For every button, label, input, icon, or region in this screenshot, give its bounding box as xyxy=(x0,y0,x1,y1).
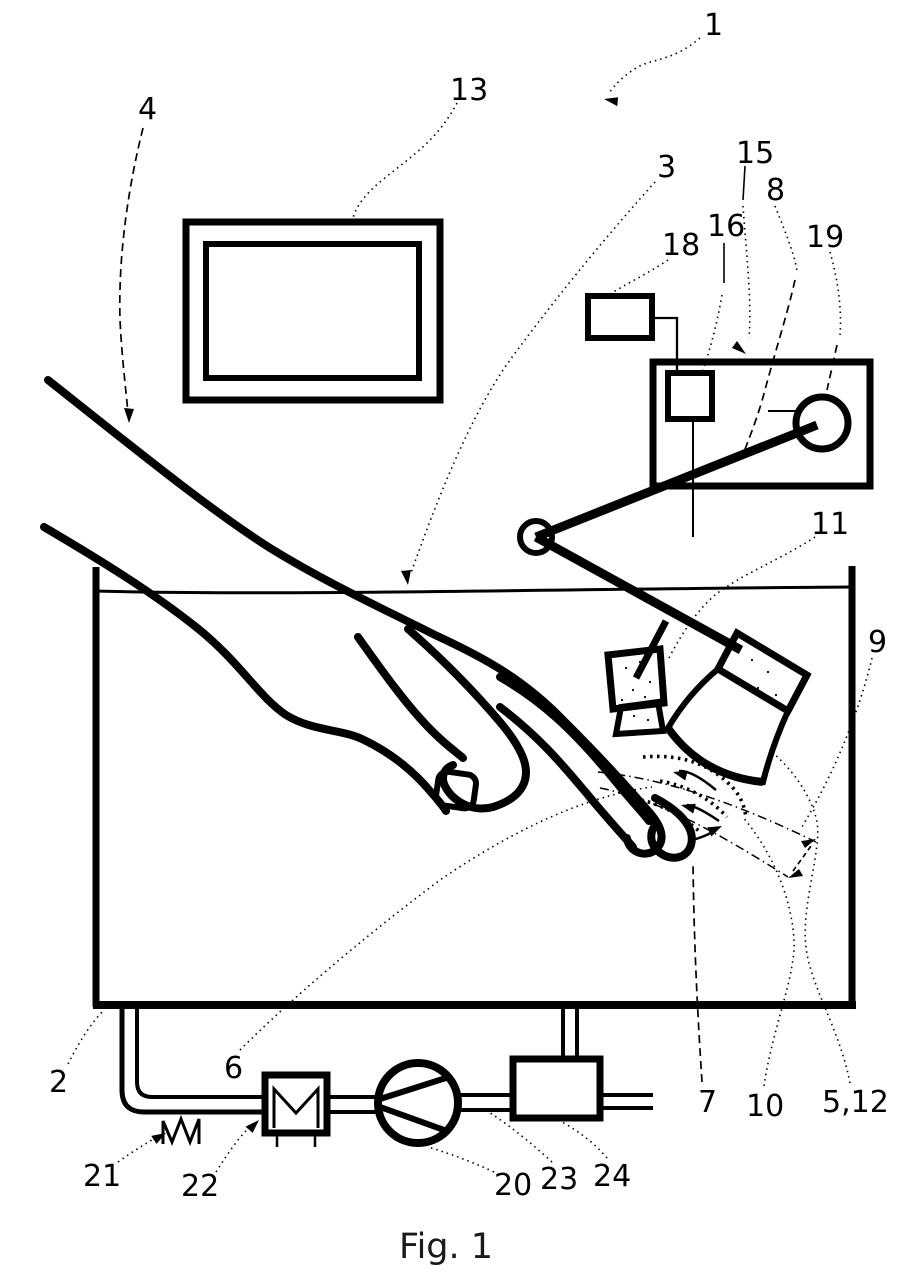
ref-label-21: 21 xyxy=(83,1159,121,1194)
ref-label-1: 1 xyxy=(704,8,723,43)
ref-label-9: 9 xyxy=(868,625,887,660)
ref-label-23: 23 xyxy=(540,1162,578,1197)
ref-label-13: 13 xyxy=(450,73,488,108)
figure-caption: Fig. 1 xyxy=(399,1227,493,1267)
ref-label-15: 15 xyxy=(736,136,774,171)
ref-label-8: 8 xyxy=(766,173,785,208)
filter-unit xyxy=(513,1059,600,1118)
ref-label-6: 6 xyxy=(224,1051,243,1086)
index-gap xyxy=(358,637,463,758)
ref-label-24: 24 xyxy=(593,1159,631,1194)
ref-label-16: 16 xyxy=(707,209,745,244)
ref-label-20: 20 xyxy=(494,1168,532,1203)
heat-exchanger xyxy=(265,1075,327,1147)
water-line xyxy=(95,587,849,593)
lever-rod xyxy=(520,425,817,678)
figure-canvas: 1 4 13 3 15 8 16 18 19 11 9 2 6 21 22 20… xyxy=(0,0,921,1276)
distance-arrow xyxy=(788,839,816,878)
ref-label-10: 10 xyxy=(746,1089,784,1124)
crank-wheel xyxy=(796,397,848,449)
ref-label-19: 19 xyxy=(806,220,844,255)
stipple-dots xyxy=(621,661,651,721)
ref-label-18: 18 xyxy=(662,228,700,263)
monitor-display xyxy=(186,222,440,400)
pump xyxy=(378,1063,458,1143)
ref-label-3: 3 xyxy=(657,150,676,185)
arm-top-contour xyxy=(48,380,650,813)
ref-label-2: 2 xyxy=(49,1065,68,1100)
ref-label-22: 22 xyxy=(181,1169,219,1204)
hand-and-arm xyxy=(44,380,692,858)
tool-workpiece xyxy=(668,633,807,782)
ref-label-7: 7 xyxy=(698,1085,717,1120)
ref-label-4: 4 xyxy=(138,92,157,127)
zigzag-symbol xyxy=(163,1119,199,1144)
ref-label-11: 11 xyxy=(811,507,849,542)
patent-figure-page: 1 4 13 3 15 8 16 18 19 11 9 2 6 21 22 20… xyxy=(0,0,921,1276)
ref-label-5-12: 5,12 xyxy=(822,1085,889,1120)
transducer xyxy=(608,649,664,734)
